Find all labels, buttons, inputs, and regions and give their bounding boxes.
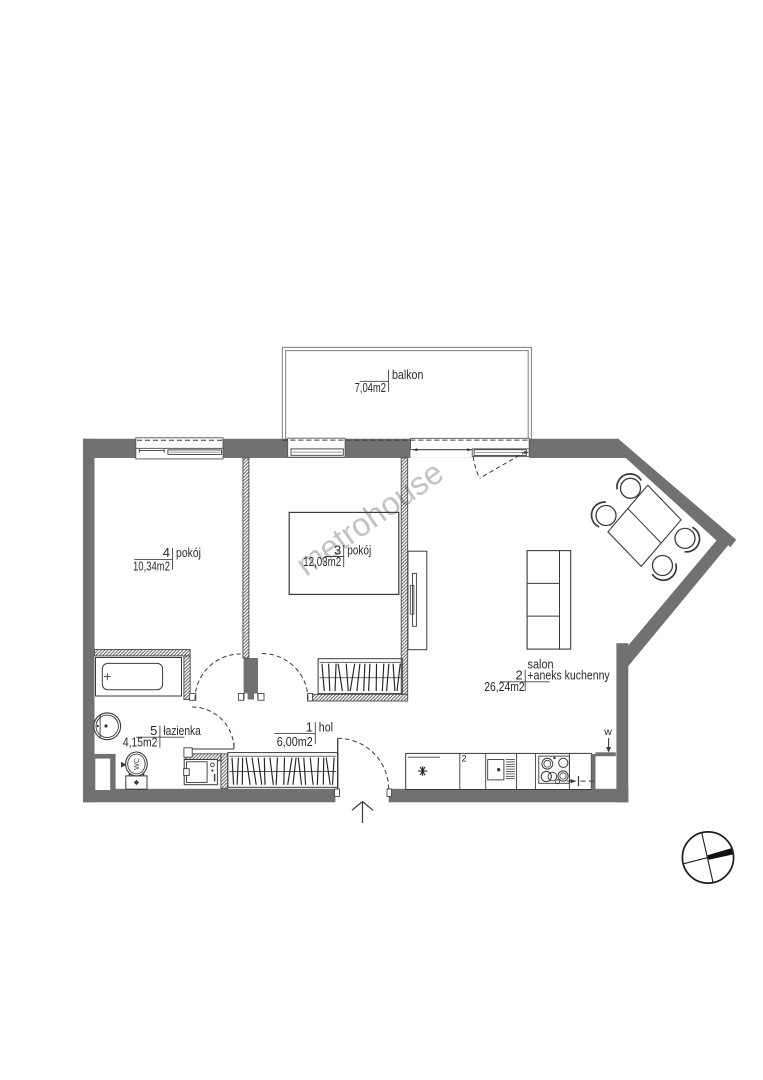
svg-text:12,03m2: 12,03m2 [303, 554, 341, 569]
svg-text:1: 1 [306, 720, 313, 735]
svg-text:10,34m2: 10,34m2 [133, 558, 170, 573]
svg-text:pokój: pokój [176, 545, 201, 560]
svg-text:2: 2 [462, 754, 467, 764]
svg-text:łazienka: łazienka [163, 723, 201, 738]
svg-text:4,15m2: 4,15m2 [123, 735, 158, 750]
svg-text:7,04m2: 7,04m2 [355, 380, 386, 395]
svg-text:6,00m2: 6,00m2 [277, 734, 313, 749]
svg-text:balkon: balkon [392, 367, 423, 382]
svg-text:WC: WC [134, 758, 141, 770]
svg-text:26,24m2: 26,24m2 [484, 679, 525, 694]
svg-text:w: w [603, 726, 612, 738]
svg-text:hol: hol [319, 720, 333, 735]
svg-text:+aneks kuchenny: +aneks kuchenny [528, 668, 611, 683]
svg-text:pokój: pokój [347, 542, 371, 557]
